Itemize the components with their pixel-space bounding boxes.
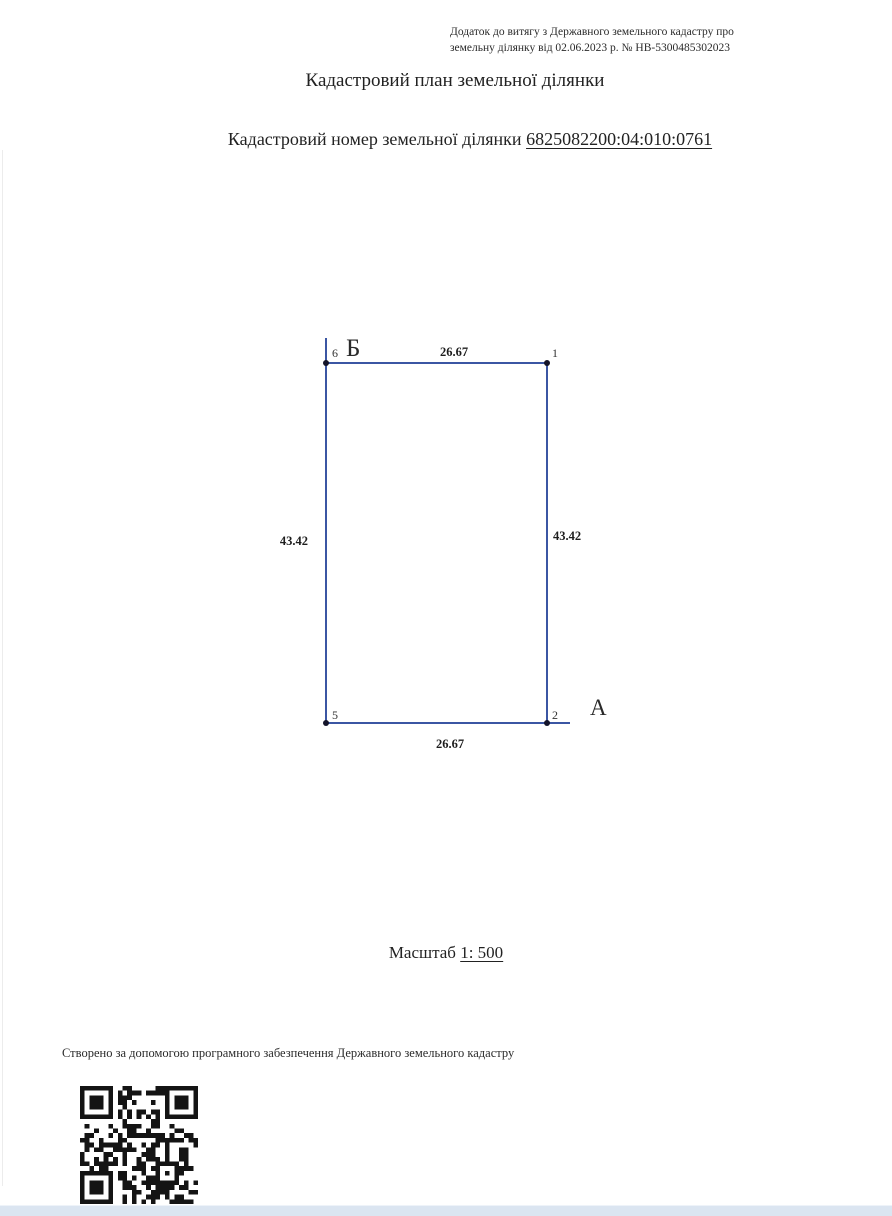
scanned-page-edge (2, 150, 3, 1186)
direction-label-b: Б (346, 335, 360, 362)
cadastral-number-value: 6825082200:04:010:0761 (526, 129, 712, 149)
scale-label: Масштаб (389, 943, 456, 962)
side-length-right: 43.42 (553, 529, 581, 543)
parcel-boundary-rect (326, 363, 547, 723)
vertex-label-6: 6 (332, 346, 338, 360)
vertex-label-2: 2 (552, 708, 558, 722)
vertex-label-5: 5 (332, 708, 338, 722)
annex-note-line1: Додаток до витягу з Державного земельног… (450, 24, 780, 40)
generator-note: Створено за допомогою програмного забезп… (62, 1046, 514, 1061)
direction-label-a: А (590, 695, 607, 720)
vertex-point-1 (544, 360, 550, 366)
parcel-boundary-lines (326, 338, 570, 723)
scale-line: Масштаб 1: 500 (0, 943, 892, 963)
viewer-bottom-bar (0, 1205, 892, 1216)
vertex-points (323, 360, 550, 726)
scale-value: 1: 500 (460, 943, 503, 962)
annex-note-line2: земельну ділянку від 02.06.2023 р. № НВ-… (450, 40, 780, 56)
annex-note: Додаток до витягу з Державного земельног… (450, 24, 780, 56)
cadastral-number-line: Кадастровий номер земельної ділянки 6825… (48, 129, 892, 150)
cadastral-number-label: Кадастровий номер земельної ділянки (228, 129, 522, 149)
vertex-label-1: 1 (552, 346, 558, 360)
page-title: Кадастровий план земельної ділянки (18, 70, 892, 92)
cadastral-plan-page: Додаток до витягу з Державного земельног… (0, 0, 892, 1216)
side-length-bottom: 26.67 (436, 737, 464, 751)
vertex-point-2 (544, 720, 550, 726)
side-length-top: 26.67 (440, 345, 468, 359)
vertex-point-5 (323, 720, 329, 726)
parcel-plan-drawing: 6 1 2 5 Б А 26.67 43.42 43.42 26.67 (240, 320, 660, 770)
vertex-point-6 (323, 360, 329, 366)
side-length-left: 43.42 (280, 534, 308, 548)
qr-code (78, 1086, 200, 1204)
